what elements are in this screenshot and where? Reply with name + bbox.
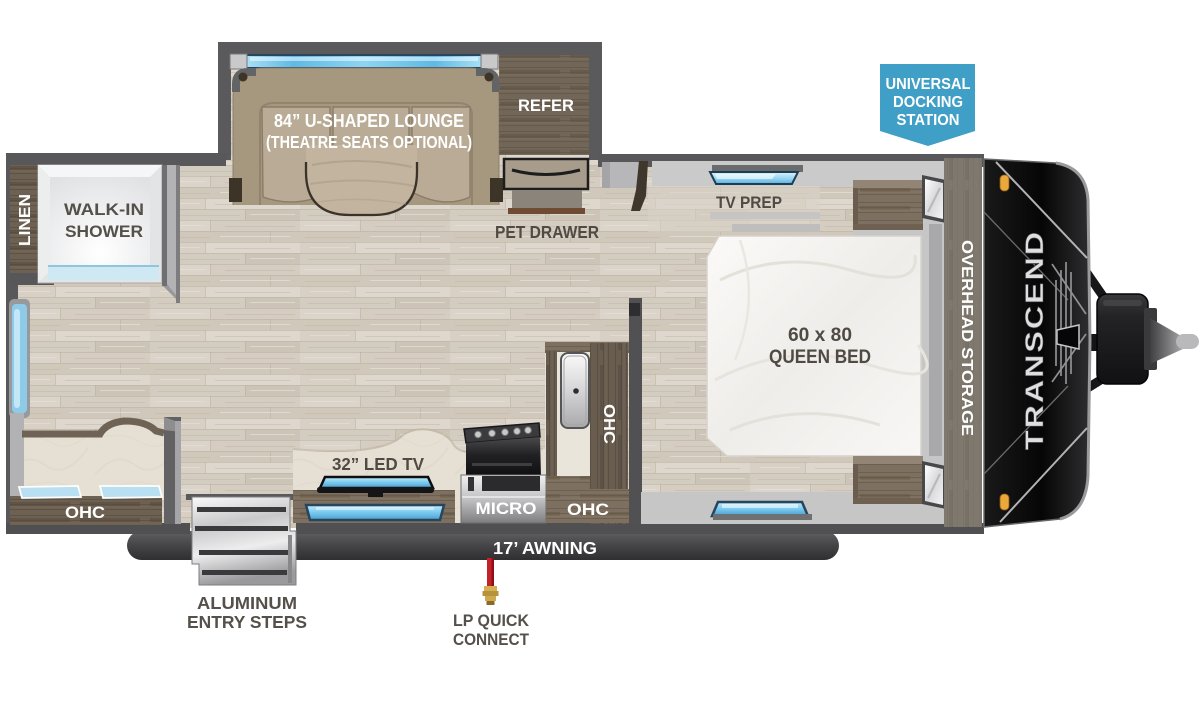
svg-text:ENTRY STEPS: ENTRY STEPS <box>187 612 307 632</box>
svg-text:OVERHEAD STORAGE: OVERHEAD STORAGE <box>958 240 975 436</box>
svg-text:OHC: OHC <box>567 501 609 519</box>
svg-text:REFER: REFER <box>518 96 574 115</box>
svg-text:MICRO: MICRO <box>476 500 537 518</box>
svg-text:60 x 80: 60 x 80 <box>788 325 852 346</box>
svg-text:LP QUICK: LP QUICK <box>453 612 529 630</box>
svg-text:CONNECT: CONNECT <box>453 631 529 649</box>
svg-text:PET DRAWER: PET DRAWER <box>495 222 599 242</box>
svg-text:(THEATRE SEATS OPTIONAL): (THEATRE SEATS OPTIONAL) <box>266 132 472 152</box>
svg-text:TRANSCEND: TRANSCEND <box>1021 230 1049 450</box>
svg-text:UNIVERSAL: UNIVERSAL <box>886 76 971 93</box>
svg-text:OHC: OHC <box>65 504 105 522</box>
svg-text:32” LED TV: 32” LED TV <box>332 454 424 474</box>
svg-text:84” U-SHAPED LOUNGE: 84” U-SHAPED LOUNGE <box>274 110 464 131</box>
svg-text:STATION: STATION <box>897 112 960 129</box>
svg-text:17’ AWNING: 17’ AWNING <box>493 538 597 558</box>
svg-text:LINEN: LINEN <box>17 194 34 246</box>
svg-text:DOCKING: DOCKING <box>893 94 963 111</box>
svg-text:ALUMINUM: ALUMINUM <box>197 593 297 613</box>
svg-text:OHC: OHC <box>600 404 617 444</box>
svg-text:WALK-IN: WALK-IN <box>64 200 144 219</box>
svg-text:TV PREP: TV PREP <box>716 194 782 212</box>
svg-text:QUEEN BED: QUEEN BED <box>769 347 871 368</box>
svg-text:SHOWER: SHOWER <box>65 222 143 241</box>
